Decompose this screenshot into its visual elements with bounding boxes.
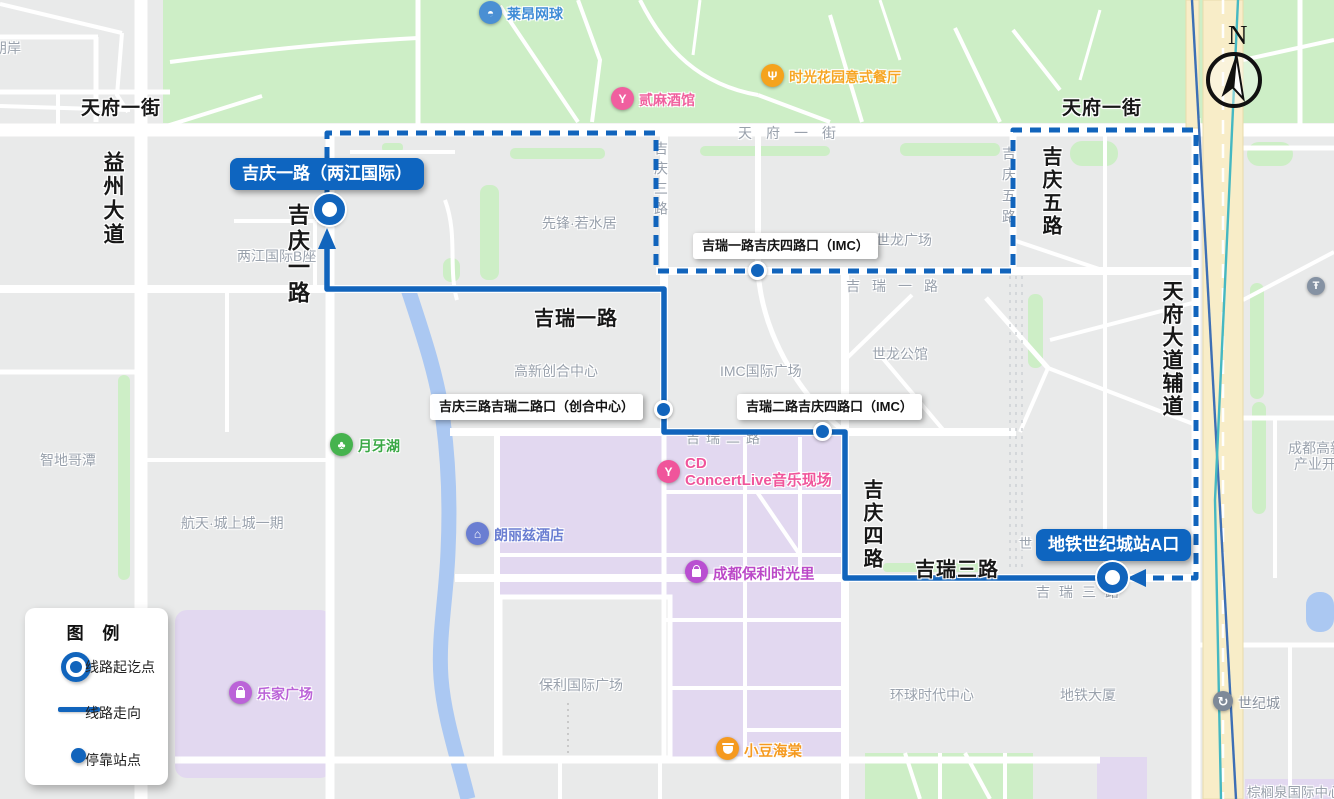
poi-laion-tennis: ◓ 莱昂网球 — [479, 1, 563, 24]
poi-antenna: Ŧ — [1307, 277, 1325, 295]
poi-label: 乐家广场 — [257, 684, 313, 704]
place-label-line2: 产业开 — [1294, 456, 1334, 472]
stop-marker-jirui2-jiqing4 — [813, 422, 832, 441]
station-label-jirui2-jiqing4-imc: 吉瑞二路吉庆四路口（IMC） — [737, 394, 922, 420]
place-label-zongquan: 棕榈泉国际中心 — [1247, 781, 1334, 799]
tree-icon: ♣ — [330, 433, 353, 456]
road-label-tianfu-1st-right: 天府一街 — [1062, 93, 1142, 120]
legend-stop-icon — [71, 748, 86, 763]
stop-marker-jirui1-jiqing4 — [748, 261, 767, 280]
tennis-icon: ◓ — [479, 1, 502, 24]
cup-glyph — [723, 746, 733, 754]
place-label-shi-partial: 世 — [1019, 533, 1032, 552]
compass-rose-icon — [1204, 50, 1266, 112]
route-arrow-up — [318, 228, 336, 249]
road-label-jirui-2nd-gray: 吉瑞二路 — [686, 428, 766, 448]
place-label-line1: 成都高新 — [1288, 440, 1334, 456]
shopping-bag-icon — [685, 560, 708, 583]
metro-icon: ↻ — [1213, 691, 1233, 711]
place-label-xianfeng: 先锋·若水居 — [542, 213, 617, 233]
road-label-jiqing-5th: 吉庆五路 — [1036, 146, 1065, 238]
poi-xiaodou-haitang: 小豆海棠 — [716, 737, 802, 761]
road-label-tianfu-1st-left: 天府一街 — [81, 93, 161, 120]
poi-label: 时光花园意式餐厅 — [789, 67, 901, 87]
road-label-jirui-3rd: 吉瑞三路 — [915, 553, 999, 582]
poi-label: 莱昂网球 — [507, 4, 563, 24]
place-label-imc-plaza: IMC国际广场 — [720, 361, 802, 381]
compass-north-label: N — [1228, 20, 1248, 51]
route-arrow-left — [1127, 569, 1146, 587]
restaurant-icon: Ψ — [761, 64, 784, 87]
station-label-jirui1-jiqing4-imc: 吉瑞一路吉庆四路口（IMC） — [693, 233, 878, 259]
road-label-jiqing-4th: 吉庆四路 — [857, 479, 886, 571]
poi-label: 小豆海棠 — [744, 740, 802, 761]
legend-item-direction-label: 线路走向 — [85, 703, 141, 723]
place-label-shilong-plaza: 世龙广场 — [876, 230, 932, 250]
legend-item-terminal-label: 线路起讫点 — [85, 657, 155, 677]
place-label-hangtian: 航天·城上城一期 — [181, 513, 284, 533]
place-label-gaoxin-center: 高新创合中心 — [514, 361, 598, 381]
legend-title: 图 例 — [25, 619, 168, 644]
cocktail-icon: Y — [657, 460, 680, 483]
bag-glyph — [692, 569, 701, 577]
place-label-huanqiu: 环球时代中心 — [890, 685, 974, 705]
road-label-tianfu-ave-frontage: 天府大道辅道 — [1156, 280, 1186, 418]
road-label-yizhou-avenue: 益州大道 — [97, 151, 127, 247]
place-label-langan: 朗岸 — [0, 38, 21, 58]
station-label-jiqing3-jirui2: 吉庆三路吉瑞二路口（创合中心） — [430, 394, 643, 420]
river — [408, 289, 468, 799]
station-label-jiqing-1st-liangjiang: 吉庆一路（两江国际） — [230, 158, 424, 190]
poi-shijicheng-metro-station: ↻ 世纪城 — [1213, 691, 1280, 713]
poi-cd-concertlive: Y CD ConcertLive音乐现场 — [657, 460, 832, 489]
shopping-bag-icon — [229, 681, 252, 704]
compass: N — [1204, 20, 1266, 112]
cocktail-icon: Y — [611, 87, 634, 110]
hotel-bed-icon: ⌂ — [466, 522, 489, 545]
terminal-marker-end — [1097, 562, 1128, 593]
legend-card: 图 例 线路起讫点 线路走向 停靠站点 — [25, 608, 168, 785]
road-label-jirui-1st: 吉瑞一路 — [534, 302, 618, 331]
place-label-gaoxin-industry: 成都高新 产业开 — [1288, 440, 1334, 472]
place-label-shilong-mansion: 世龙公馆 — [872, 344, 928, 364]
bag-glyph — [236, 690, 245, 698]
poi-ermala-bar: Y 贰麻酒馆 — [611, 87, 695, 110]
poi-langlizi-hotel: ⌂ 朗丽兹酒店 — [466, 522, 564, 545]
route-dashed-path — [327, 130, 1196, 578]
poi-label: 贰麻酒馆 — [639, 90, 695, 110]
route-map-canvas: 天府一街 吉庆三路 吉庆五路 吉瑞一路 吉瑞二路 吉瑞三路 朗岸 两江国际B座 … — [0, 0, 1334, 799]
poi-label: 月牙湖 — [358, 436, 400, 456]
legend-item-stop-label: 停靠站点 — [85, 750, 141, 770]
station-label-metro-shijicheng-exit-a: 地铁世纪城站A口 — [1036, 529, 1191, 561]
antenna-icon: Ŧ — [1307, 277, 1325, 295]
terminal-marker-start — [314, 194, 345, 225]
poi-label-line2: ConcertLive音乐现场 — [685, 472, 832, 489]
poi-label: CD ConcertLive音乐现场 — [685, 455, 832, 489]
dessert-cup-icon — [716, 737, 739, 760]
road-label-jiqing-5th-gray: 吉庆五路 — [999, 146, 1019, 230]
road-label-jiqing-3rd-gray: 吉庆三路 — [651, 141, 671, 221]
pond — [1306, 592, 1334, 632]
poi-label-line1: CD — [685, 455, 832, 472]
poi-yueyahu-lake: ♣ 月牙湖 — [330, 433, 400, 456]
stop-marker-jiqing3-jirui2 — [654, 400, 673, 419]
road-label-jirui-1st-gray: 吉瑞一路 — [846, 276, 950, 296]
poi-shiguang-restaurant: Ψ 时光花园意式餐厅 — [761, 64, 901, 87]
legend-terminal-core — [70, 661, 82, 673]
place-label-ditie-daxia: 地铁大厦 — [1060, 685, 1116, 705]
road-label-tianfu-1st-onroad: 天府一街 — [738, 123, 850, 143]
place-label-zhidi: 智地哥潭 — [40, 450, 96, 470]
place-label-baoli-plaza: 保利国际广场 — [539, 675, 623, 695]
poi-baoli-shiguangli: 成都保利时光里 — [685, 560, 815, 584]
poi-label: 世纪城 — [1238, 693, 1280, 713]
expressway-layer — [1186, 0, 1243, 799]
metro-lines-layer — [1192, 0, 1238, 799]
parks-layer — [118, 0, 1334, 799]
poi-lejia-plaza: 乐家广场 — [229, 681, 313, 704]
poi-label: 成都保利时光里 — [713, 563, 815, 584]
poi-label: 朗丽兹酒店 — [494, 525, 564, 545]
road-label-jiqing-1st: 吉庆一路 — [281, 203, 313, 307]
